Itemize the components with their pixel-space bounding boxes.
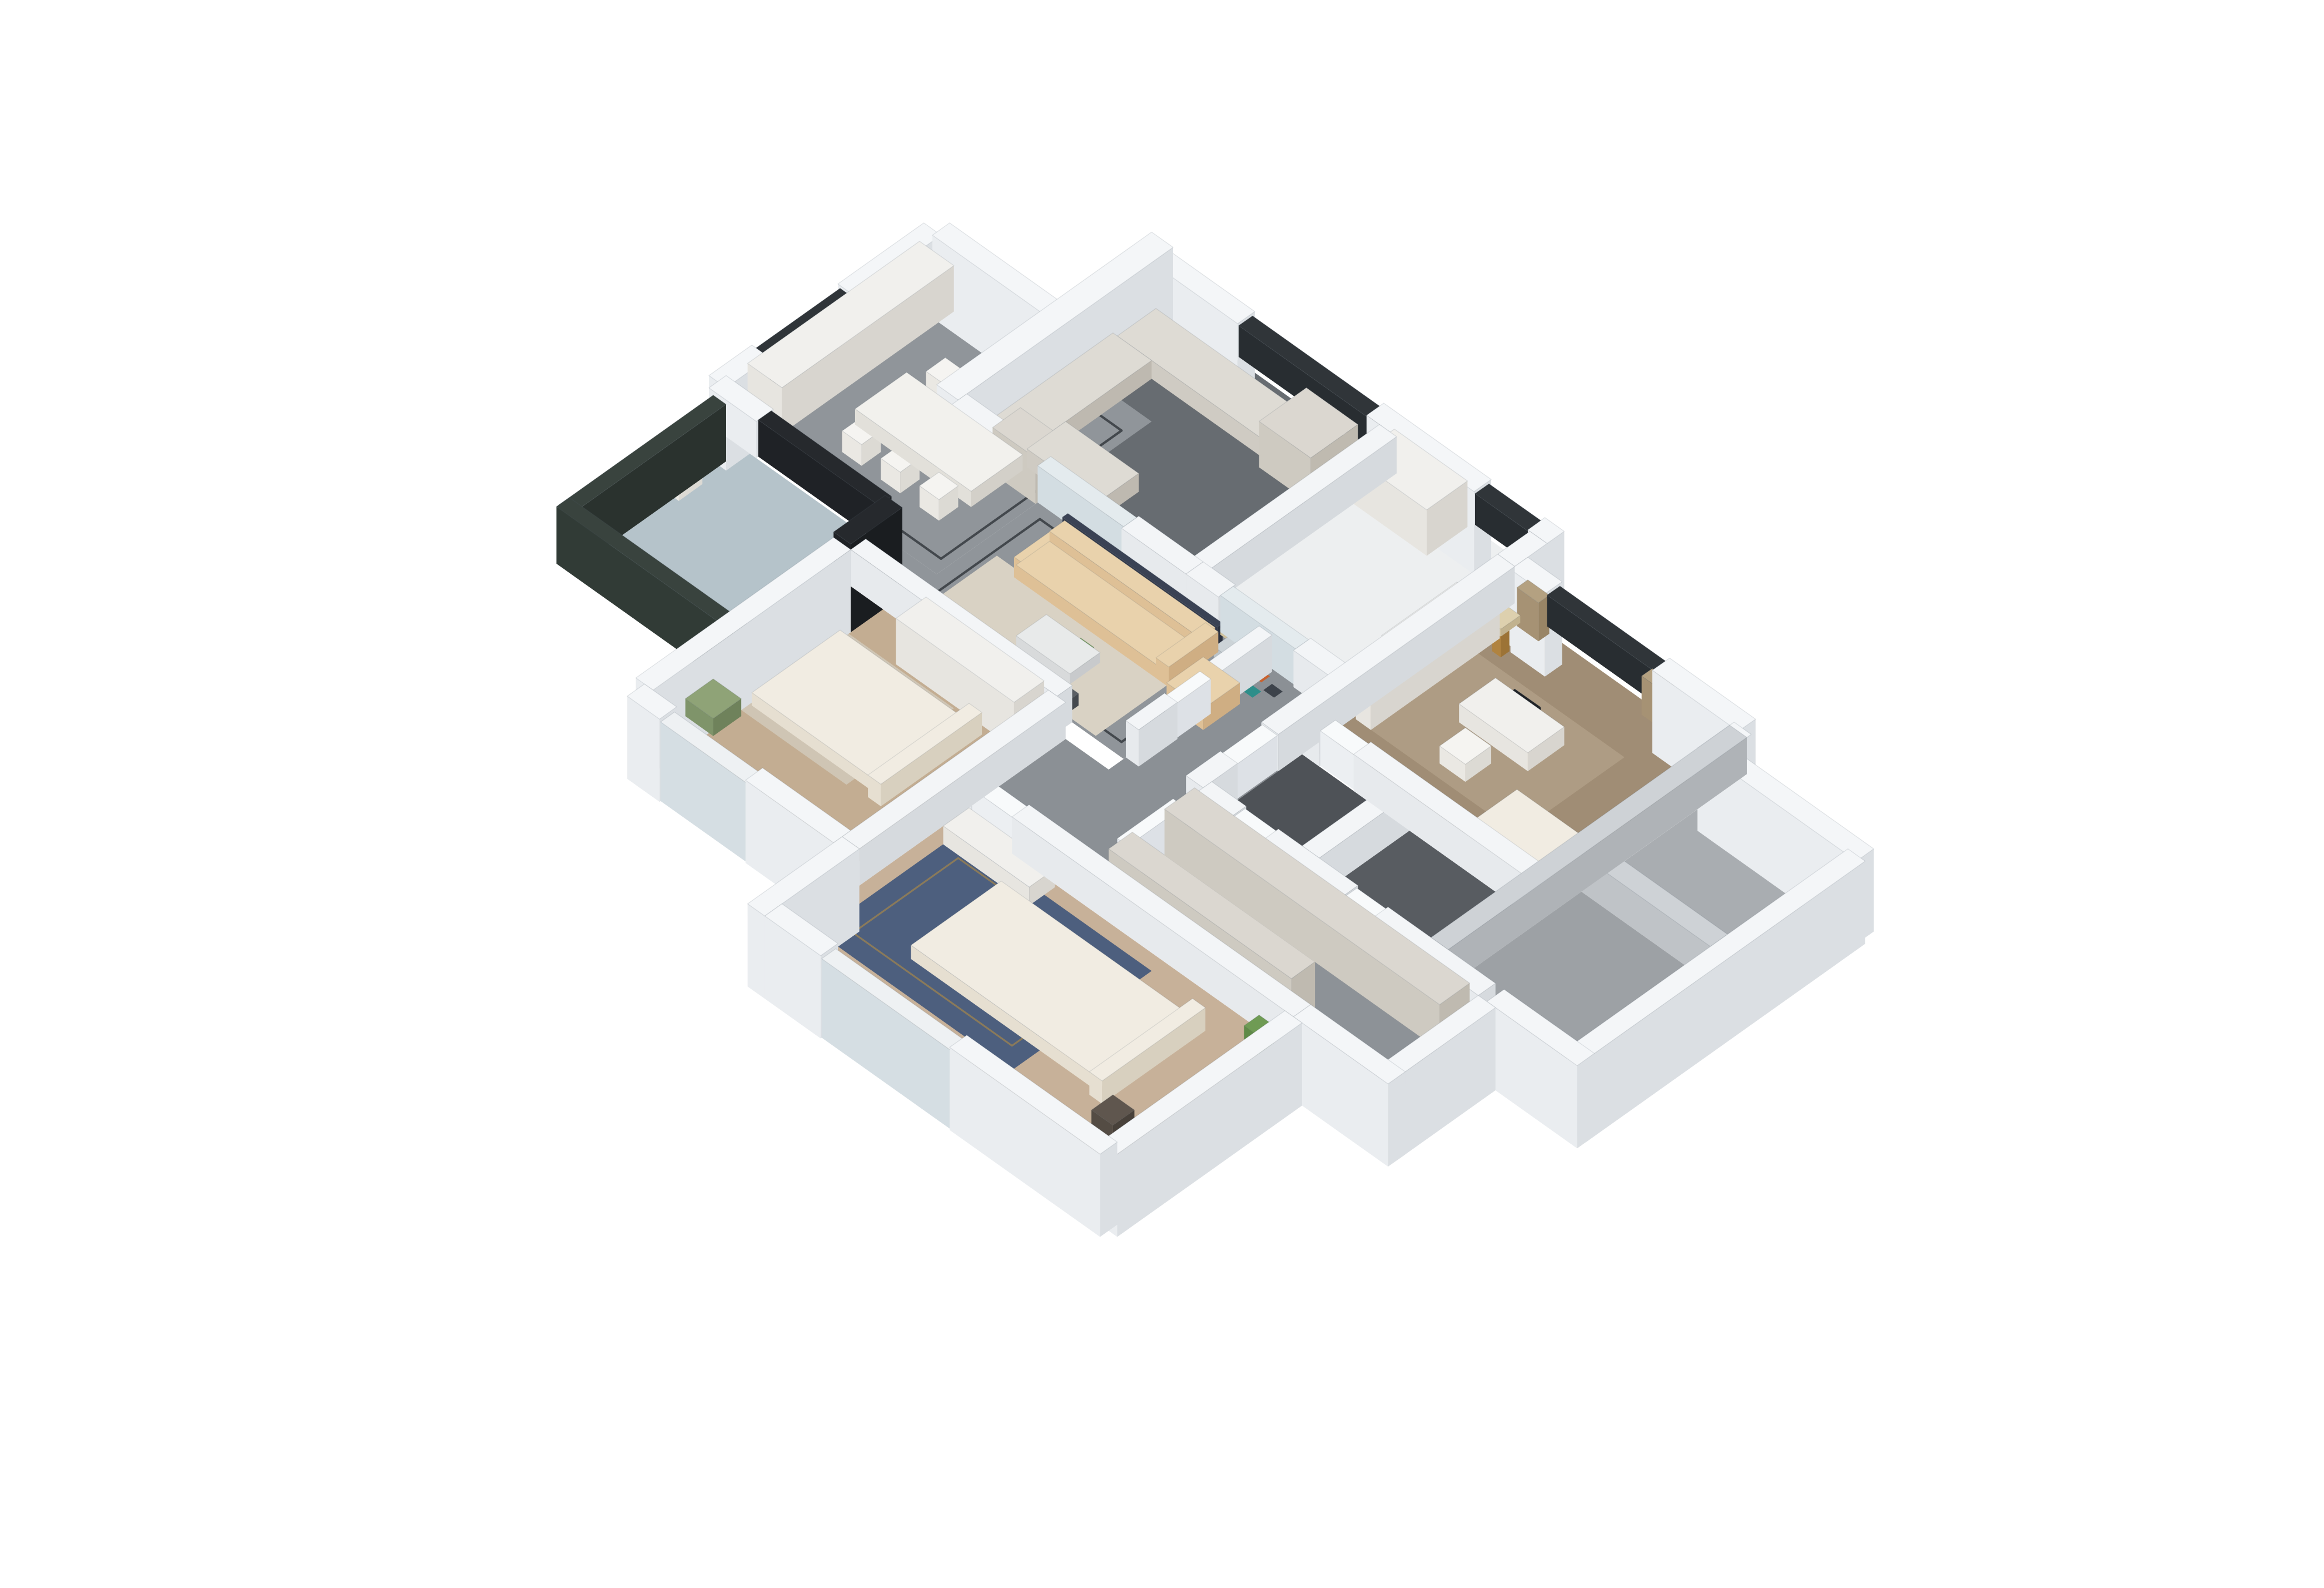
outer-wall-master-sw-b-side-se <box>1100 1142 1118 1237</box>
outer-wall-wing-s-side-se <box>1577 1054 1595 1149</box>
outer-wall-step-ne-right-side-se <box>1388 1072 1406 1167</box>
outer-wall-step-bed2-master-side-sw <box>748 904 765 999</box>
floorplan-3d-render <box>0 0 2324 1588</box>
floorplan-page <box>0 0 2324 1588</box>
